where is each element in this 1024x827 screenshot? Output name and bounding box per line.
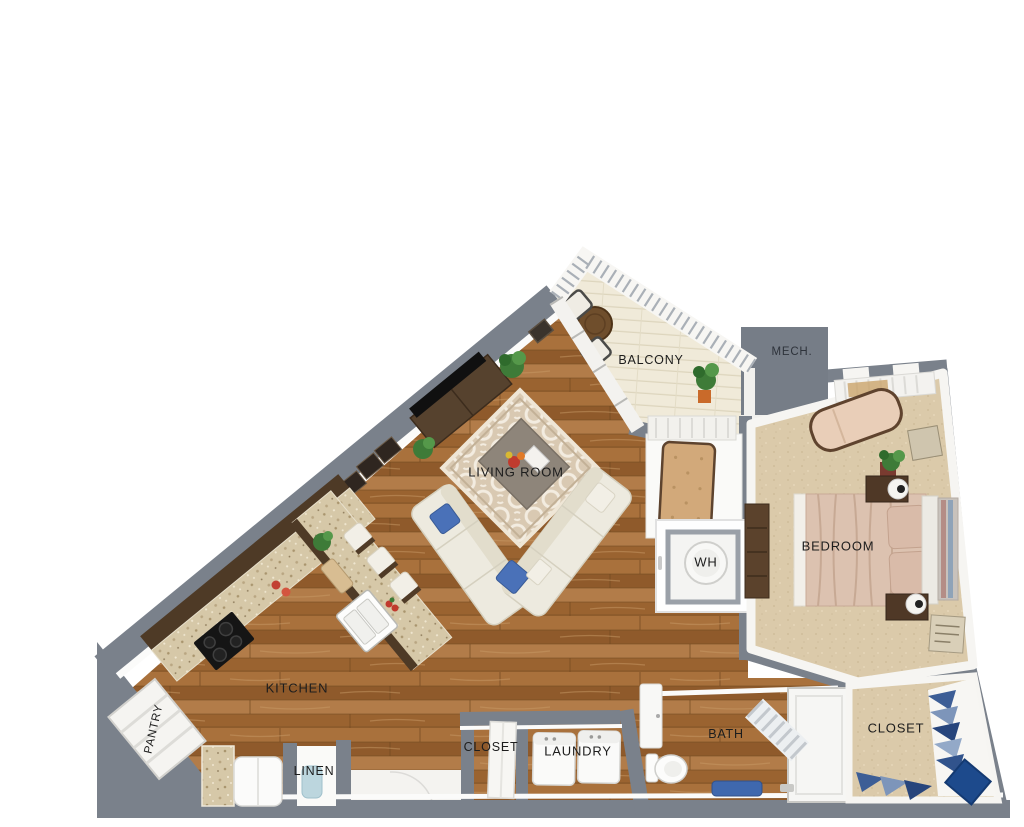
toilet [646,754,687,783]
room-label-living-room: LIVING ROOM [468,465,563,480]
bedroom-art [908,426,943,461]
room-label-mech: MECH. [771,346,812,358]
floorplan-page: LIVING ROOM KITCHEN BEDROOM BALCONY MECH… [0,0,1024,827]
room-label-linen: LINEN [294,764,335,778]
headboard-art-panel [938,498,958,600]
room-label-water-heater: WH [694,555,717,570]
table-lamp [906,594,926,614]
laundry-baseboard [460,726,622,728]
closet-laundry-divider [516,722,528,804]
table-lamp [888,479,908,499]
balcony-plant-pot [698,390,711,403]
bath-mat [712,781,762,796]
room-label-kitchen: KITCHEN [266,681,329,696]
bedroom [745,372,973,682]
refrigerator [234,757,282,806]
bath-door-handle [656,714,660,718]
room-label-balcony: BALCONY [618,353,683,367]
wh-door-handle [658,556,662,570]
room-label-closet-hall: CLOSET [464,740,519,754]
lower-counter [202,746,234,806]
room-label-laundry: LAUNDRY [544,744,612,759]
bed-pillow [887,505,927,549]
headboard [922,496,938,604]
washer [533,733,576,786]
room-label-bedroom: BEDROOM [802,539,875,554]
floor-art [929,615,965,653]
bath-accessory [780,784,794,792]
room-label-bath: BATH [708,727,744,741]
dresser [745,504,769,598]
hall-closet-door [488,722,517,799]
walkin-closet [849,676,998,804]
closet-laundry-top-wall [460,717,620,719]
room-label-closet-bedroom: CLOSET [868,721,925,736]
